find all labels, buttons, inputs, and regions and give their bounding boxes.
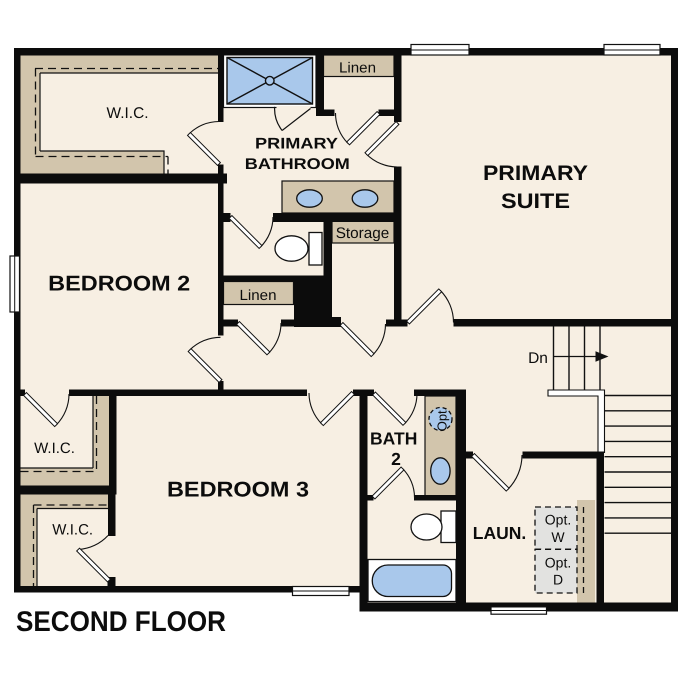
svg-text:Opt.: Opt.	[545, 555, 571, 571]
svg-text:W.I.C.: W.I.C.	[34, 440, 75, 457]
svg-text:Storage: Storage	[336, 225, 390, 242]
svg-text:SECOND FLOOR: SECOND FLOOR	[16, 606, 226, 638]
svg-text:W: W	[551, 529, 565, 545]
svg-text:Dn: Dn	[528, 350, 548, 367]
svg-text:Opt.: Opt.	[435, 407, 450, 432]
svg-text:Linen: Linen	[339, 60, 376, 76]
svg-text:W.I.C.: W.I.C.	[107, 105, 149, 122]
svg-text:LAUN.: LAUN.	[473, 523, 526, 543]
svg-text:Opt.: Opt.	[545, 512, 571, 528]
svg-text:BEDROOM 2: BEDROOM 2	[48, 272, 190, 296]
svg-text:SUITE: SUITE	[501, 190, 570, 213]
svg-text:BEDROOM 3: BEDROOM 3	[167, 478, 309, 502]
svg-text:BATH: BATH	[370, 428, 417, 448]
svg-text:W.I.C.: W.I.C.	[52, 522, 93, 539]
svg-text:Linen: Linen	[240, 288, 277, 304]
svg-text:2: 2	[391, 449, 401, 469]
svg-text:PRIMARY: PRIMARY	[483, 162, 588, 185]
svg-text:D: D	[553, 572, 563, 588]
svg-text:PRIMARY: PRIMARY	[255, 135, 339, 152]
svg-text:BATHROOM: BATHROOM	[245, 156, 350, 173]
